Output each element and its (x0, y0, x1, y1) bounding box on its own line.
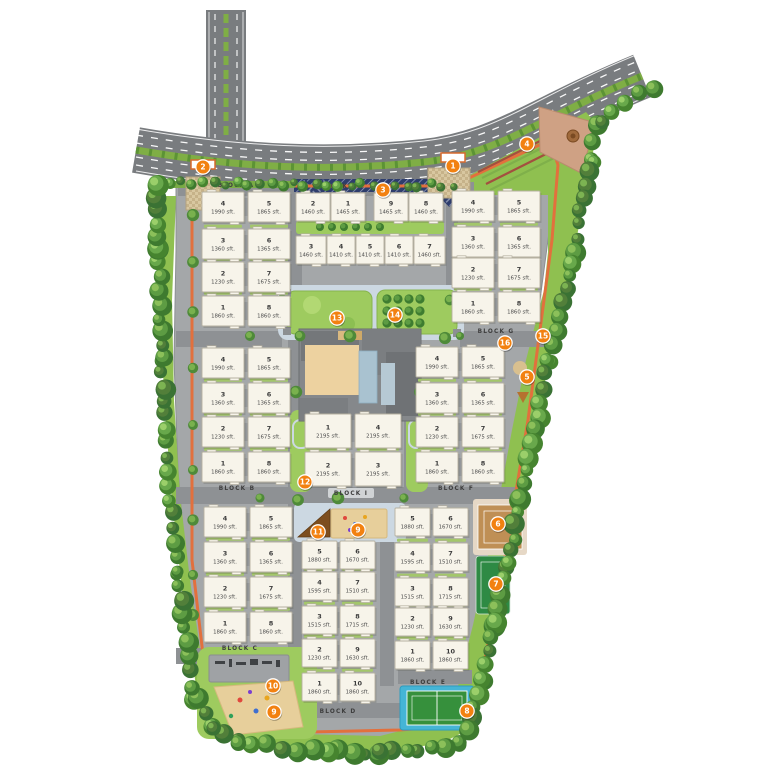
unit-building[interactable]: 71675 sft. (462, 415, 506, 450)
unit-building[interactable]: 31360 sft. (416, 381, 460, 416)
amenity-marker-8[interactable]: 8 (460, 704, 475, 720)
unit-area: 2195 sft. (366, 434, 390, 440)
unit-area: 1360 sft. (211, 247, 235, 253)
unit-number: 5 (269, 515, 274, 523)
unit-number: 1 (410, 648, 415, 656)
marker-number: 6 (495, 520, 500, 529)
unit-number: 2 (471, 266, 476, 274)
amenity-marker-13[interactable]: 13 (330, 311, 345, 327)
amenity-marker-9[interactable]: 9 (351, 523, 366, 539)
unit-area: 1410 sft. (329, 253, 353, 259)
unit-area: 1465 sft. (336, 210, 360, 216)
unit-building[interactable]: 51410 sft. (356, 234, 386, 267)
amenity-marker-15[interactable]: 15 (536, 329, 551, 345)
unit-building[interactable]: 21230 sft. (204, 575, 248, 610)
amenity-marker-4[interactable]: 4 (520, 137, 535, 153)
unit-building[interactable]: 51865 sft. (462, 345, 506, 380)
unit-building[interactable]: 11860 sft. (202, 450, 246, 485)
unit-building[interactable]: 21230 sft. (202, 260, 246, 295)
marker-number: 13 (332, 314, 342, 323)
unit-building[interactable]: 51865 sft. (248, 190, 292, 225)
unit-number: 3 (223, 550, 228, 558)
unit-building[interactable]: 41990 sft. (202, 346, 246, 381)
unit-number: 8 (267, 460, 272, 468)
unit-area: 1460 sft. (301, 210, 325, 216)
block-label: BLOCK E (410, 680, 446, 686)
unit-number: 4 (221, 356, 226, 364)
amenity-marker-1[interactable]: 1 (446, 159, 461, 175)
unit-area: 1460 sft. (299, 253, 323, 259)
unit-number: 7 (481, 425, 486, 433)
unit-area: 2195 sft. (316, 472, 340, 478)
unit-area: 1365 sft. (471, 401, 495, 407)
unit-building[interactable]: 12195 sft. (305, 412, 353, 451)
marker-number: 1 (450, 162, 455, 171)
unit-number: 7 (427, 243, 432, 251)
unit-building[interactable]: 81860 sft. (250, 610, 294, 645)
unit-number: 2 (317, 646, 322, 654)
unit-building[interactable]: 81460 sft. (409, 191, 445, 224)
unit-building[interactable]: 31360 sft. (202, 227, 246, 262)
unit-number: 7 (269, 585, 274, 593)
block-label: BLOCK G (478, 329, 515, 335)
unit-number: 5 (481, 355, 486, 363)
unit-building[interactable]: 91630 sft. (340, 637, 377, 670)
unit-building[interactable]: 61365 sft. (462, 381, 506, 416)
unit-area: 1860 sft. (211, 470, 235, 476)
unit-area: 1675 sft. (257, 280, 281, 286)
unit-area: 1365 sft. (259, 560, 283, 566)
unit-area: 1860 sft. (461, 310, 485, 316)
unit-number: 8 (448, 585, 453, 593)
unit-building[interactable]: 51880 sft. (302, 539, 339, 572)
unit-building[interactable]: 21230 sft. (452, 256, 496, 291)
unit-number: 7 (517, 266, 522, 274)
unit-area: 1865 sft. (507, 209, 531, 215)
unit-area: 1865 sft. (257, 366, 281, 372)
marker-number: 9 (355, 526, 360, 535)
unit-building[interactable]: 11860 sft. (416, 450, 460, 485)
unit-building[interactable]: 91630 sft. (433, 606, 470, 639)
unit-number: 8 (355, 613, 360, 621)
amenity-marker-11[interactable]: 11 (311, 525, 326, 541)
unit-building[interactable]: 61410 sft. (385, 234, 415, 267)
marker-number: 7 (493, 580, 498, 589)
unit-building[interactable]: 31460 sft. (296, 234, 328, 267)
unit-number: 4 (376, 424, 381, 432)
unit-number: 7 (267, 270, 272, 278)
amenity-marker-10[interactable]: 10 (266, 679, 281, 695)
unit-number: 2 (223, 585, 228, 593)
unit-building[interactable]: 51865 sft. (498, 189, 542, 224)
unit-number: 6 (448, 515, 453, 523)
unit-number: 1 (471, 300, 476, 308)
unit-number: 4 (317, 579, 322, 587)
unit-area: 1230 sft. (211, 435, 235, 441)
marker-number: 12 (300, 478, 310, 487)
unit-number: 1 (317, 680, 322, 688)
unit-building[interactable]: 41410 sft. (327, 234, 357, 267)
unit-building[interactable]: 41595 sft. (302, 570, 339, 603)
unit-area: 1230 sft. (211, 280, 235, 286)
marker-number: 10 (268, 682, 278, 691)
unit-building[interactable]: 42195 sft. (355, 412, 403, 451)
block-label: BLOCK B (219, 486, 255, 492)
unit-building[interactable]: 21230 sft. (395, 606, 432, 639)
unit-building[interactable]: 11860 sft. (204, 610, 248, 645)
unit-number: 4 (223, 515, 228, 523)
marker-number: 3 (380, 186, 385, 195)
unit-number: 6 (517, 235, 522, 243)
unit-area: 1860 sft. (257, 470, 281, 476)
unit-area: 1860 sft. (346, 690, 370, 696)
marker-number: 14 (390, 311, 400, 320)
unit-area: 1630 sft. (346, 656, 370, 662)
amenity-marker-14[interactable]: 14 (388, 308, 403, 324)
amenity-marker-3[interactable]: 3 (376, 183, 391, 199)
unit-building[interactable]: 81715 sft. (340, 604, 377, 637)
unit-number: 1 (221, 460, 226, 468)
unit-number: 4 (339, 243, 344, 251)
marker-number: 5 (524, 373, 529, 382)
unit-area: 1595 sft. (308, 589, 332, 595)
unit-number: 3 (435, 391, 440, 399)
amenity-marker-6[interactable]: 6 (491, 517, 506, 533)
unit-building[interactable]: 41595 sft. (395, 541, 432, 574)
unit-area: 1230 sft. (213, 595, 237, 601)
unit-building[interactable]: 31515 sft. (302, 604, 339, 637)
amenity-marker-7[interactable]: 7 (489, 577, 504, 593)
unit-number: 5 (267, 200, 272, 208)
unit-building[interactable]: 81715 sft. (433, 576, 470, 609)
unit-building[interactable]: 81860 sft. (462, 450, 506, 485)
unit-area: 1675 sft. (257, 435, 281, 441)
unit-number: 2 (410, 615, 415, 623)
unit-building[interactable]: 71510 sft. (433, 541, 470, 574)
unit-number: 9 (448, 615, 453, 623)
unit-number: 3 (317, 613, 322, 621)
amenity-marker-12[interactable]: 12 (298, 475, 313, 491)
unit-number: 7 (267, 425, 272, 433)
unit-building[interactable]: 81860 sft. (248, 294, 292, 329)
amenity-marker-9[interactable]: 9 (267, 705, 282, 721)
unit-building[interactable]: 41990 sft. (452, 189, 496, 224)
unit-number: 3 (221, 237, 226, 245)
unit-number: 6 (481, 391, 486, 399)
unit-number: 6 (397, 243, 402, 251)
unit-building[interactable]: 21230 sft. (302, 637, 339, 670)
amenity-marker-16[interactable]: 16 (498, 336, 513, 352)
unit-area: 1865 sft. (259, 525, 283, 531)
unit-number: 3 (410, 585, 415, 593)
block-label: BLOCK I (334, 491, 368, 497)
marker-number: 15 (538, 332, 548, 341)
unit-area: 1360 sft. (425, 401, 449, 407)
unit-building[interactable]: 61365 sft. (250, 540, 294, 575)
unit-building[interactable]: 41990 sft. (416, 345, 460, 380)
unit-number: 1 (223, 620, 228, 628)
unit-number: 3 (221, 391, 226, 399)
unit-number: 4 (471, 199, 476, 207)
unit-number: 3 (376, 462, 381, 470)
unit-area: 1230 sft. (425, 435, 449, 441)
unit-area: 1990 sft. (211, 366, 235, 372)
unit-area: 1365 sft. (257, 247, 281, 253)
unit-number: 1 (435, 460, 440, 468)
unit-building[interactable]: 61365 sft. (248, 381, 292, 416)
unit-building[interactable]: 101860 sft. (433, 639, 470, 672)
unit-area: 1460 sft. (414, 210, 438, 216)
unit-building[interactable]: 71675 sft. (248, 260, 292, 295)
unit-area: 1865 sft. (471, 365, 495, 371)
unit-number: 8 (267, 304, 272, 312)
unit-building[interactable]: 31515 sft. (395, 576, 432, 609)
unit-number: 2 (435, 425, 440, 433)
unit-building[interactable]: 21230 sft. (416, 415, 460, 450)
unit-building[interactable]: 71510 sft. (340, 570, 377, 603)
unit-building[interactable]: 101860 sft. (340, 671, 377, 704)
unit-area: 1675 sft. (259, 595, 283, 601)
unit-number: 5 (517, 199, 522, 207)
unit-area: 1510 sft. (346, 589, 370, 595)
unit-number: 4 (435, 355, 440, 363)
unit-number: 6 (355, 548, 360, 556)
unit-building[interactable]: 71675 sft. (250, 575, 294, 610)
unit-building[interactable]: 51880 sft. (395, 506, 432, 539)
unit-area: 1510 sft. (439, 560, 463, 566)
unit-area: 1630 sft. (439, 625, 463, 631)
unit-number: 4 (410, 550, 415, 558)
marker-number: 2 (200, 163, 205, 172)
unit-area: 1675 sft. (471, 435, 495, 441)
unit-building[interactable]: 81860 sft. (498, 290, 542, 325)
unit-area: 2195 sft. (366, 472, 390, 478)
unit-number: 1 (221, 304, 226, 312)
site-plan-map: 41990 sft.51865 sft.31360 sft.61365 sft.… (0, 0, 768, 768)
amenity-marker-2[interactable]: 2 (196, 160, 211, 176)
unit-building[interactable]: 71675 sft. (498, 256, 542, 291)
unit-building[interactable]: 41990 sft. (202, 190, 246, 225)
site-plan-page: 41990 sft.51865 sft.31360 sft.61365 sft.… (0, 0, 768, 768)
unit-area: 1715 sft. (346, 623, 370, 629)
unit-number: 2 (326, 462, 331, 470)
unit-area: 1860 sft. (308, 690, 332, 696)
unit-area: 1410 sft. (358, 253, 382, 259)
unit-area: 1990 sft. (211, 210, 235, 216)
unit-area: 1230 sft. (461, 276, 485, 282)
unit-area: 1365 sft. (257, 401, 281, 407)
amenity-marker-5[interactable]: 5 (520, 370, 535, 386)
unit-number: 2 (221, 270, 226, 278)
unit-area: 1860 sft. (257, 314, 281, 320)
unit-number: 8 (481, 460, 486, 468)
marker-number: 9 (271, 708, 276, 717)
unit-building[interactable]: 61670 sft. (433, 506, 470, 539)
unit-area: 1860 sft. (213, 630, 237, 636)
unit-number: 8 (424, 200, 429, 208)
unit-area: 1880 sft. (308, 558, 332, 564)
unit-building[interactable]: 71675 sft. (248, 415, 292, 450)
unit-area: 1990 sft. (461, 209, 485, 215)
unit-area: 1365 sft. (507, 245, 531, 251)
unit-building[interactable]: 31360 sft. (204, 540, 248, 575)
unit-number: 3 (309, 243, 314, 251)
unit-building[interactable]: 11860 sft. (395, 639, 432, 672)
unit-area: 1860 sft. (471, 470, 495, 476)
unit-number: 8 (269, 620, 274, 628)
marker-number: 4 (524, 140, 529, 149)
unit-number: 8 (517, 300, 522, 308)
unit-number: 10 (353, 680, 363, 688)
unit-area: 1860 sft. (259, 630, 283, 636)
marker-number: 11 (313, 528, 323, 537)
unit-number: 6 (267, 237, 272, 245)
unit-building[interactable]: 11860 sft. (202, 294, 246, 329)
unit-area: 1360 sft. (213, 560, 237, 566)
unit-building[interactable]: 61670 sft. (340, 539, 377, 572)
unit-number: 3 (471, 235, 476, 243)
unit-building[interactable]: 51865 sft. (250, 505, 294, 540)
unit-building[interactable]: 41990 sft. (204, 505, 248, 540)
unit-area: 1670 sft. (439, 525, 463, 531)
unit-area: 1670 sft. (346, 558, 370, 564)
unit-area: 1460 sft. (418, 253, 442, 259)
marker-number: 16 (500, 339, 510, 348)
unit-area: 1990 sft. (425, 365, 449, 371)
unit-area: 1515 sft. (308, 623, 332, 629)
unit-area: 1230 sft. (401, 625, 425, 631)
unit-area: 1860 sft. (211, 314, 235, 320)
unit-number: 4 (221, 200, 226, 208)
unit-area: 1515 sft. (401, 595, 425, 601)
unit-area: 1860 sft. (439, 658, 463, 664)
unit-number: 9 (389, 200, 394, 208)
unit-number: 1 (326, 424, 331, 432)
unit-area: 1880 sft. (401, 525, 425, 531)
unit-area: 1675 sft. (507, 276, 531, 282)
unit-building[interactable]: 21230 sft. (202, 415, 246, 450)
unit-area: 1595 sft. (401, 560, 425, 566)
unit-area: 1715 sft. (439, 595, 463, 601)
unit-area: 1410 sft. (387, 253, 411, 259)
unit-number: 5 (410, 515, 415, 523)
unit-number: 7 (355, 579, 360, 587)
marker-number: 8 (464, 707, 469, 716)
unit-number: 6 (267, 391, 272, 399)
unit-number: 1 (346, 200, 351, 208)
unit-building[interactable]: 11860 sft. (302, 671, 339, 704)
unit-number: 2 (221, 425, 226, 433)
unit-area: 1360 sft. (211, 401, 235, 407)
unit-building[interactable]: 81860 sft. (248, 450, 292, 485)
unit-area: 2195 sft. (316, 434, 340, 440)
block-label: BLOCK C (222, 646, 258, 652)
unit-area: 1865 sft. (257, 210, 281, 216)
block-label: BLOCK D (320, 709, 357, 715)
block-label: BLOCK F (438, 486, 474, 492)
unit-area: 1990 sft. (213, 525, 237, 531)
unit-number: 2 (311, 200, 316, 208)
unit-number: 5 (267, 356, 272, 364)
unit-building[interactable]: 61365 sft. (248, 227, 292, 262)
unit-area: 1230 sft. (308, 656, 332, 662)
unit-building[interactable]: 31360 sft. (202, 381, 246, 416)
unit-building[interactable]: 71460 sft. (414, 234, 447, 267)
unit-building[interactable]: 11860 sft. (452, 290, 496, 325)
unit-number: 9 (355, 646, 360, 654)
unit-number: 5 (317, 548, 322, 556)
unit-area: 1360 sft. (461, 245, 485, 251)
unit-building[interactable]: 31360 sft. (452, 225, 496, 260)
unit-building[interactable]: 11465 sft. (331, 191, 367, 224)
unit-number: 5 (368, 243, 373, 251)
unit-building[interactable]: 51865 sft. (248, 346, 292, 381)
unit-area: 1465 sft. (379, 210, 403, 216)
unit-building[interactable]: 61365 sft. (498, 225, 542, 260)
unit-area: 1860 sft. (425, 470, 449, 476)
unit-area: 1860 sft. (507, 310, 531, 316)
unit-number: 10 (446, 648, 456, 656)
unit-building[interactable]: 32195 sft. (355, 450, 403, 489)
unit-area: 1860 sft. (401, 658, 425, 664)
unit-number: 7 (448, 550, 453, 558)
unit-building[interactable]: 21460 sft. (296, 191, 332, 224)
unit-number: 6 (269, 550, 274, 558)
